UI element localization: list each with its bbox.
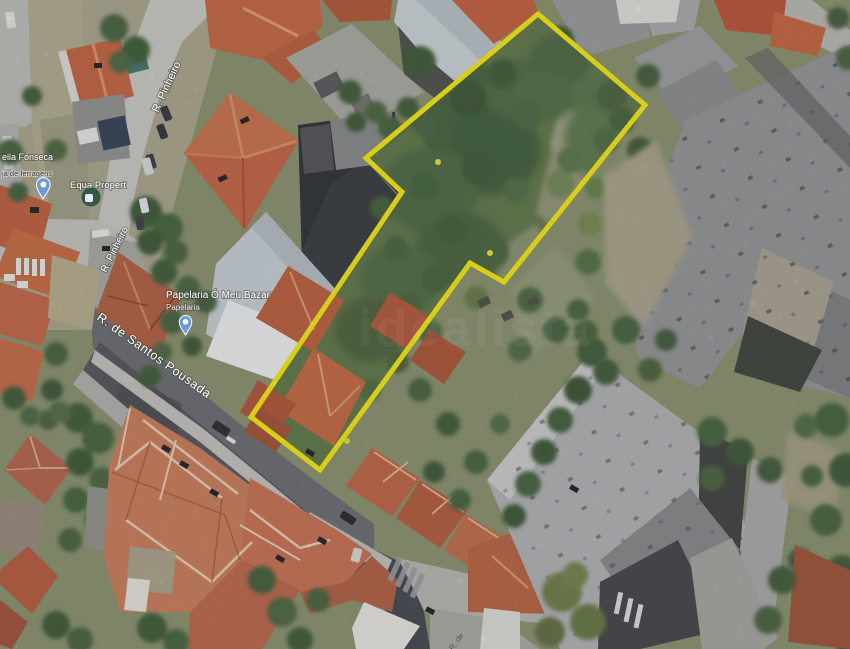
svg-text:eila Fonseca: eila Fonseca: [2, 152, 53, 162]
svg-text:Papelaria Ó Meu Bazar: Papelaria Ó Meu Bazar: [166, 288, 271, 301]
svg-text:idealista: idealista: [358, 300, 593, 358]
svg-text:Papelaria: Papelaria: [166, 303, 200, 312]
svg-text:ja de ferragens: ja de ferragens: [1, 169, 52, 178]
svg-text:Equa Propert: Equa Propert: [70, 180, 126, 191]
